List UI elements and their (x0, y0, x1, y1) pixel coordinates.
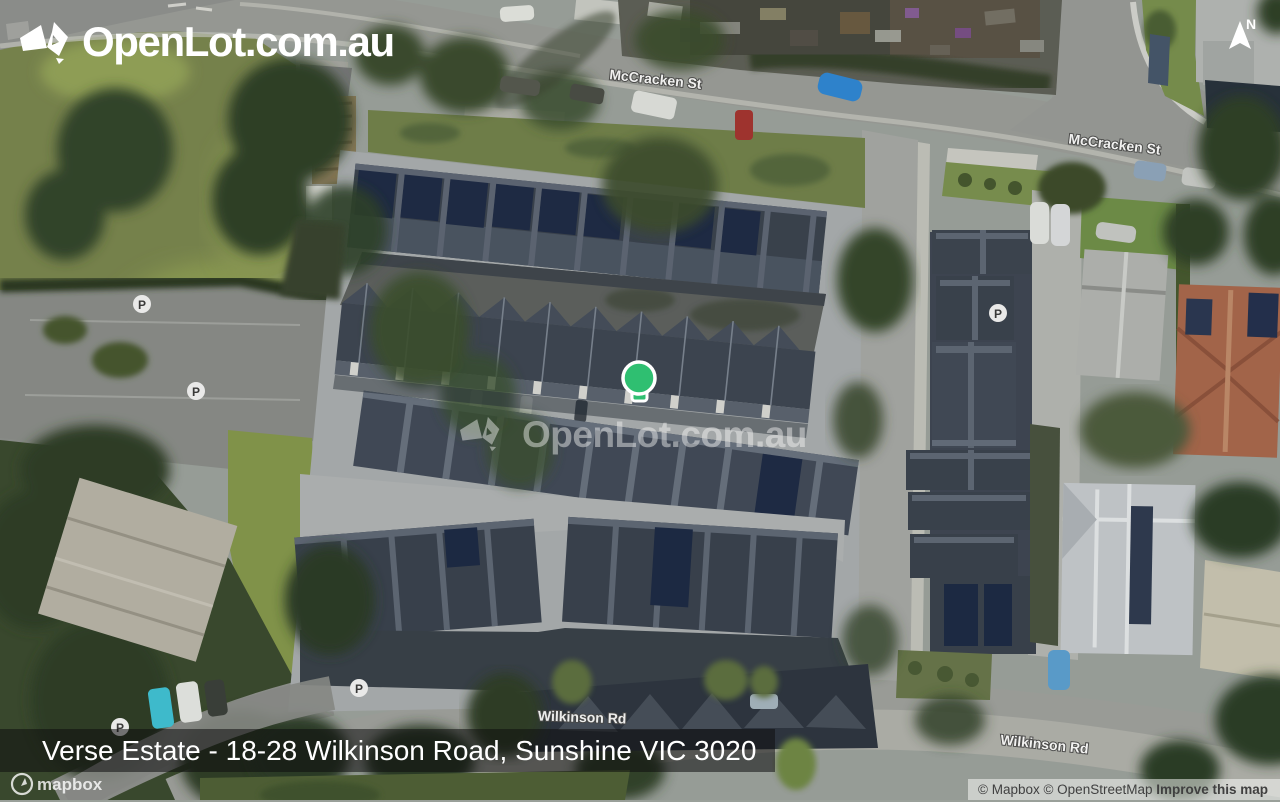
svg-text:mapbox: mapbox (37, 775, 103, 794)
svg-text:N: N (1246, 16, 1256, 32)
